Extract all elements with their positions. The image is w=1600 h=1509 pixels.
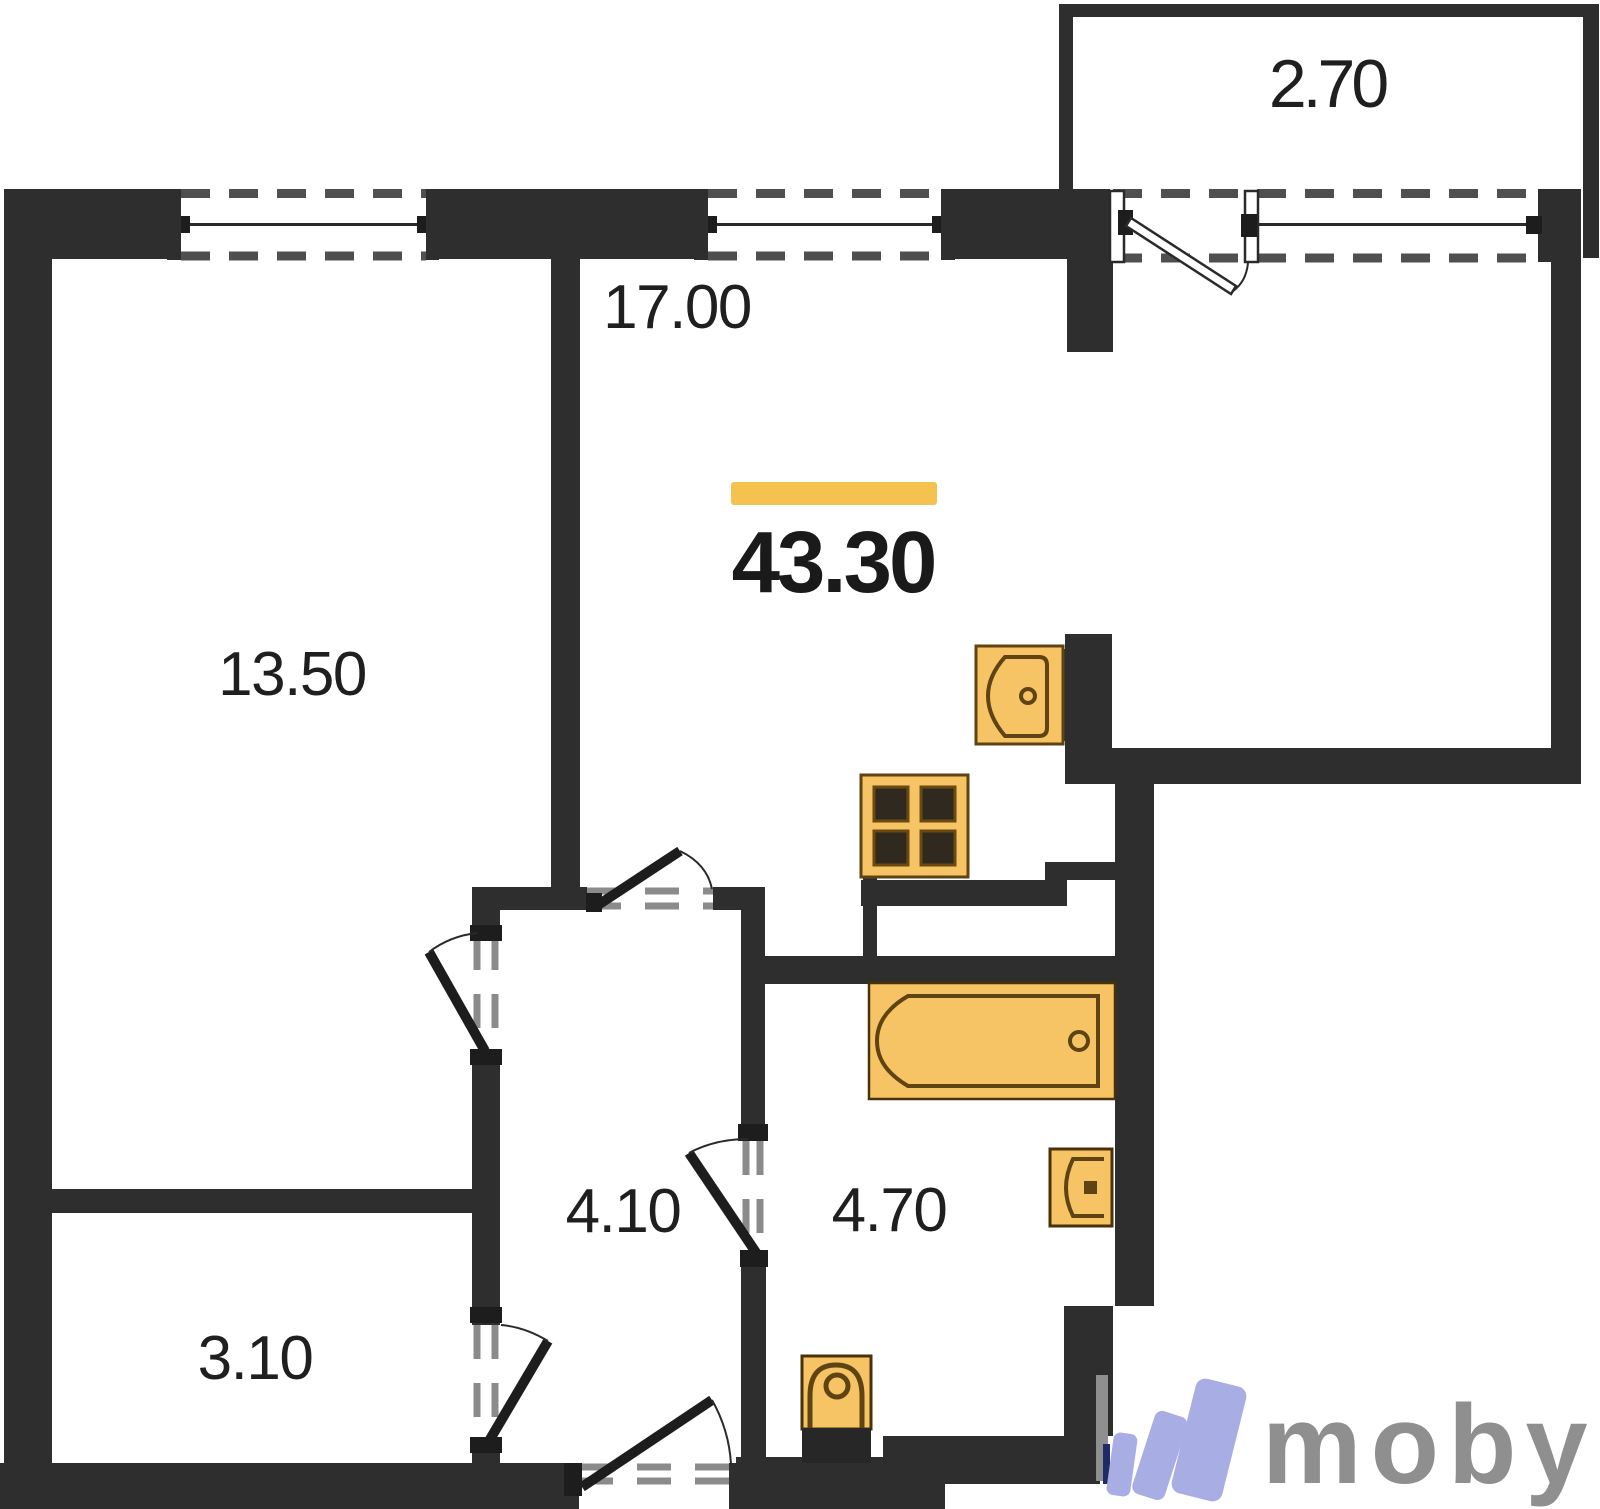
svg-text:13.50: 13.50 — [218, 640, 366, 709]
svg-text:4.10: 4.10 — [566, 1177, 681, 1246]
svg-text:3.10: 3.10 — [198, 1324, 313, 1393]
svg-text:17.00: 17.00 — [603, 273, 751, 342]
svg-text:4.70: 4.70 — [832, 1176, 947, 1245]
svg-text:43.30: 43.30 — [732, 514, 935, 611]
svg-text:2.70: 2.70 — [1269, 46, 1388, 122]
svg-text:moby: moby — [1262, 1382, 1597, 1507]
